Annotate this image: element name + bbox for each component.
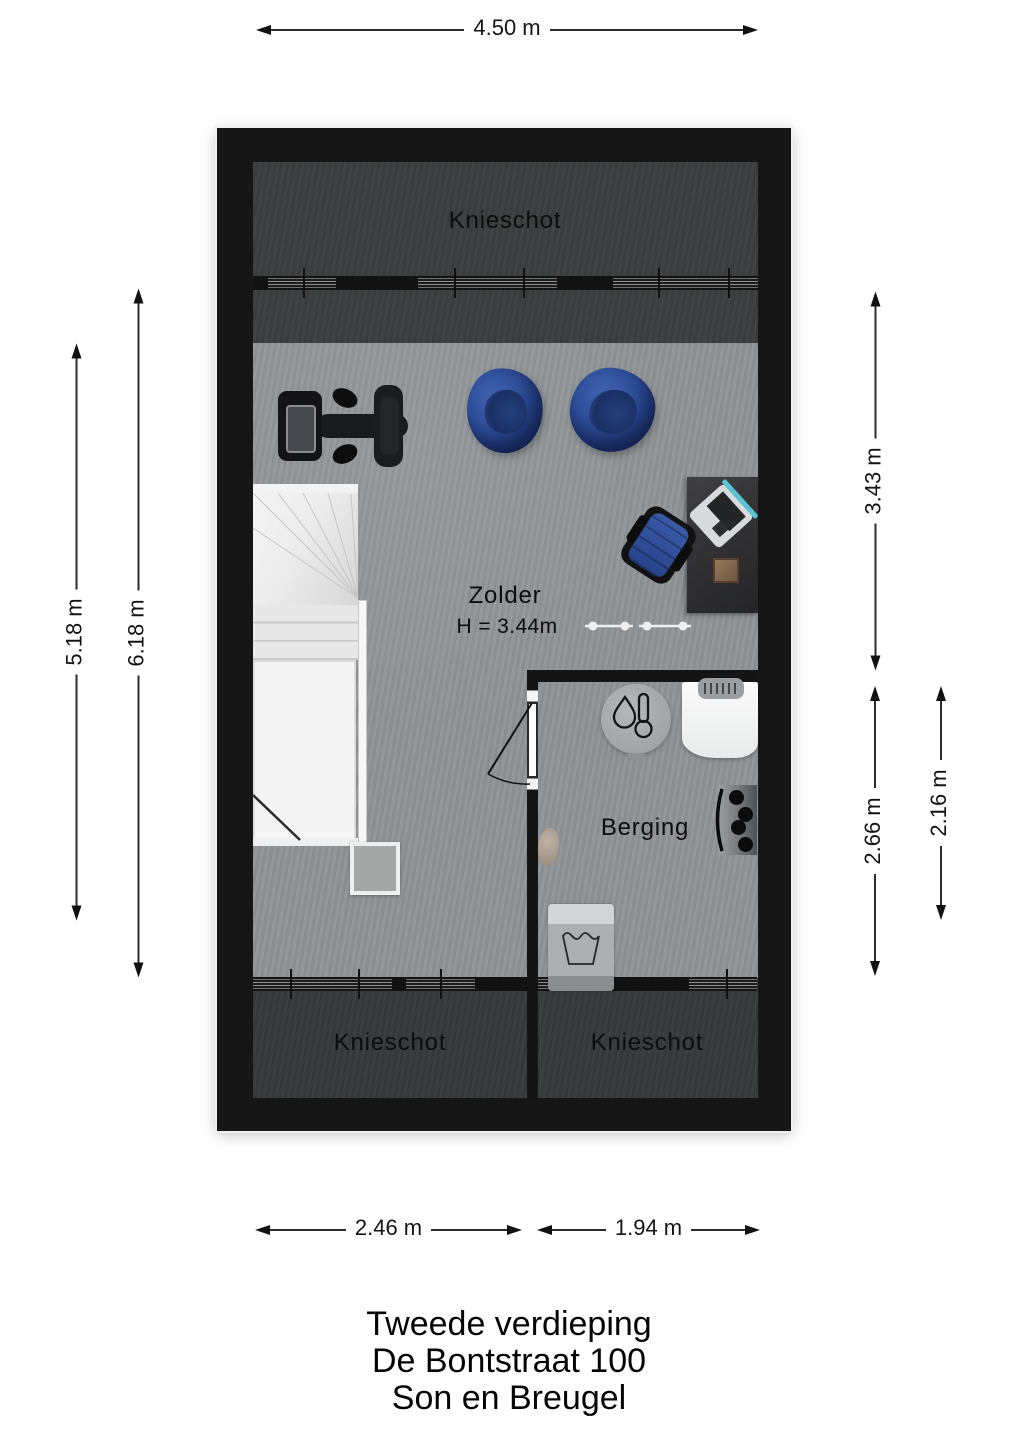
- wall-segment: [253, 276, 268, 290]
- room-height-label: H = 3.44m: [456, 615, 557, 639]
- dimension-label: 3.43 m: [861, 438, 887, 523]
- wall-tick: [440, 969, 442, 999]
- workbench-tool-rack: [698, 678, 744, 699]
- dimension-line: [691, 1229, 745, 1231]
- staircase-bottom-edge: [253, 838, 358, 846]
- boiler-tab: [628, 753, 644, 759]
- staircase-steps: [253, 605, 358, 660]
- dimension-line: [552, 1229, 606, 1231]
- staircase-winders: [253, 493, 358, 605]
- knieschot-wall-line-top: [253, 276, 758, 290]
- exercise-bike-pedal: [329, 440, 360, 467]
- dimension-line: [271, 29, 464, 31]
- dimension-line: [875, 524, 877, 656]
- wall-tick: [454, 268, 456, 298]
- arrowhead-left-icon: [255, 1225, 270, 1235]
- bean-bag-fold: [585, 386, 639, 437]
- panel-knob: [738, 837, 753, 852]
- wall-segment: [557, 276, 613, 290]
- dimension-line: [940, 846, 942, 905]
- dimension-label: 1.94 m: [606, 1215, 691, 1241]
- wall-segment: [614, 977, 689, 991]
- title-address: De Bontstraat 100: [0, 1343, 1018, 1380]
- dimension-right-lower-inner: 2.16 m: [929, 686, 953, 920]
- laptop: [688, 483, 754, 549]
- wall-tick: [658, 268, 660, 298]
- wall-segment: [392, 977, 406, 991]
- dimension-label: 2.16 m: [926, 760, 952, 845]
- berging-side-wall: [527, 790, 538, 1098]
- staircase-well: [253, 660, 356, 840]
- computer-mouse: [728, 587, 741, 603]
- desk: [687, 477, 758, 613]
- door-hinge: [526, 778, 539, 790]
- arrowhead-right-icon: [871, 291, 881, 306]
- wall-segment: [336, 276, 418, 290]
- dimension-bottom-right: 1.94 m: [537, 1218, 760, 1242]
- dimension-label: 2.46 m: [346, 1215, 431, 1241]
- door-hinge: [526, 690, 539, 702]
- title-floor: Tweede verdieping: [0, 1306, 1018, 1343]
- arrowhead-left-icon: [72, 906, 82, 921]
- arrowhead-right-icon: [745, 1225, 760, 1235]
- dimension-left-inner: 5.18 m: [65, 344, 89, 921]
- tool-marks: [704, 683, 738, 694]
- control-panel: [718, 785, 757, 855]
- dimension-label: 5.18 m: [62, 589, 88, 674]
- dimension-left-outer: 6.18 m: [127, 289, 151, 978]
- wall-tick: [358, 969, 360, 999]
- panel-knob: [731, 820, 746, 835]
- side-mat: [350, 842, 400, 895]
- berging-door: [527, 702, 538, 778]
- dimension-line: [138, 303, 140, 590]
- dimension-line: [76, 675, 78, 906]
- wall-tick: [728, 268, 730, 298]
- wall-tick: [523, 268, 525, 298]
- exercise-bike-console: [278, 391, 322, 461]
- arrowhead-left-icon: [256, 25, 271, 35]
- bean-bag-fold: [477, 384, 533, 441]
- room-label-berging: Berging: [601, 814, 689, 842]
- dimension-line: [138, 676, 140, 963]
- staircase-railing: [358, 600, 367, 846]
- exercise-bike-screen: [286, 405, 316, 453]
- arrowhead-right-icon: [507, 1225, 522, 1235]
- dimension-bottom-left: 2.46 m: [255, 1218, 522, 1242]
- book: [713, 558, 739, 583]
- arrowhead-right-icon: [134, 288, 144, 303]
- dimension-label: 2.66 m: [860, 788, 886, 873]
- wall-tick: [726, 969, 728, 999]
- dimension-line: [550, 29, 743, 31]
- arrowhead-left-icon: [134, 963, 144, 978]
- knieschot-zone-top: [253, 162, 758, 343]
- dimension-label: 6.18 m: [124, 590, 150, 675]
- plan-title: Tweede verdieping De Bontstraat 100 Son …: [0, 1306, 1018, 1417]
- room-label-knieschot-bottom-left: Knieschot: [334, 1029, 447, 1057]
- arrowhead-left-icon: [537, 1225, 552, 1235]
- wall-tick: [303, 268, 305, 298]
- dimension-line: [874, 874, 876, 961]
- dimension-line: [431, 1229, 507, 1231]
- dimension-right-lower-outer: 2.66 m: [863, 686, 887, 976]
- boiler-unit: [601, 684, 671, 754]
- berging-side-wall: [527, 670, 538, 692]
- exercise-bike-pedal: [329, 384, 360, 411]
- dimension-line: [940, 701, 942, 760]
- arrowhead-right-icon: [72, 343, 82, 358]
- dimension-top-width: 4.50 m: [256, 18, 758, 42]
- room-label-zolder: Zolder: [469, 582, 542, 610]
- exercise-bike-seatpad: [380, 397, 399, 455]
- dimension-line: [875, 306, 877, 438]
- arrowhead-left-icon: [871, 656, 881, 671]
- arrowhead-left-icon: [870, 961, 880, 976]
- floorplan: Knieschot Zolder H = 3.44m Berging Knies…: [217, 128, 791, 1131]
- room-label-knieschot-top: Knieschot: [449, 207, 562, 235]
- dimension-label: 4.50 m: [464, 15, 549, 41]
- dimension-line: [270, 1229, 346, 1231]
- floorplan-page: 4.50 m 5.18 m 6.18 m 3.43 m 2.66 m 2.16 …: [0, 0, 1018, 1440]
- arrowhead-left-icon: [936, 905, 946, 920]
- exercise-bike: [278, 385, 403, 467]
- dimension-right-upper: 3.43 m: [864, 292, 888, 671]
- panel-knob: [729, 790, 744, 805]
- washing-machine: [548, 904, 614, 991]
- dimension-line: [76, 358, 78, 589]
- arrowhead-right-icon: [936, 686, 946, 701]
- wall-tick: [290, 969, 292, 999]
- room-label-knieschot-bottom-right: Knieschot: [591, 1029, 704, 1057]
- arrowhead-right-icon: [870, 686, 880, 701]
- title-city: Son en Breugel: [0, 1380, 1018, 1417]
- arrowhead-right-icon: [743, 25, 758, 35]
- dimension-line: [874, 701, 876, 788]
